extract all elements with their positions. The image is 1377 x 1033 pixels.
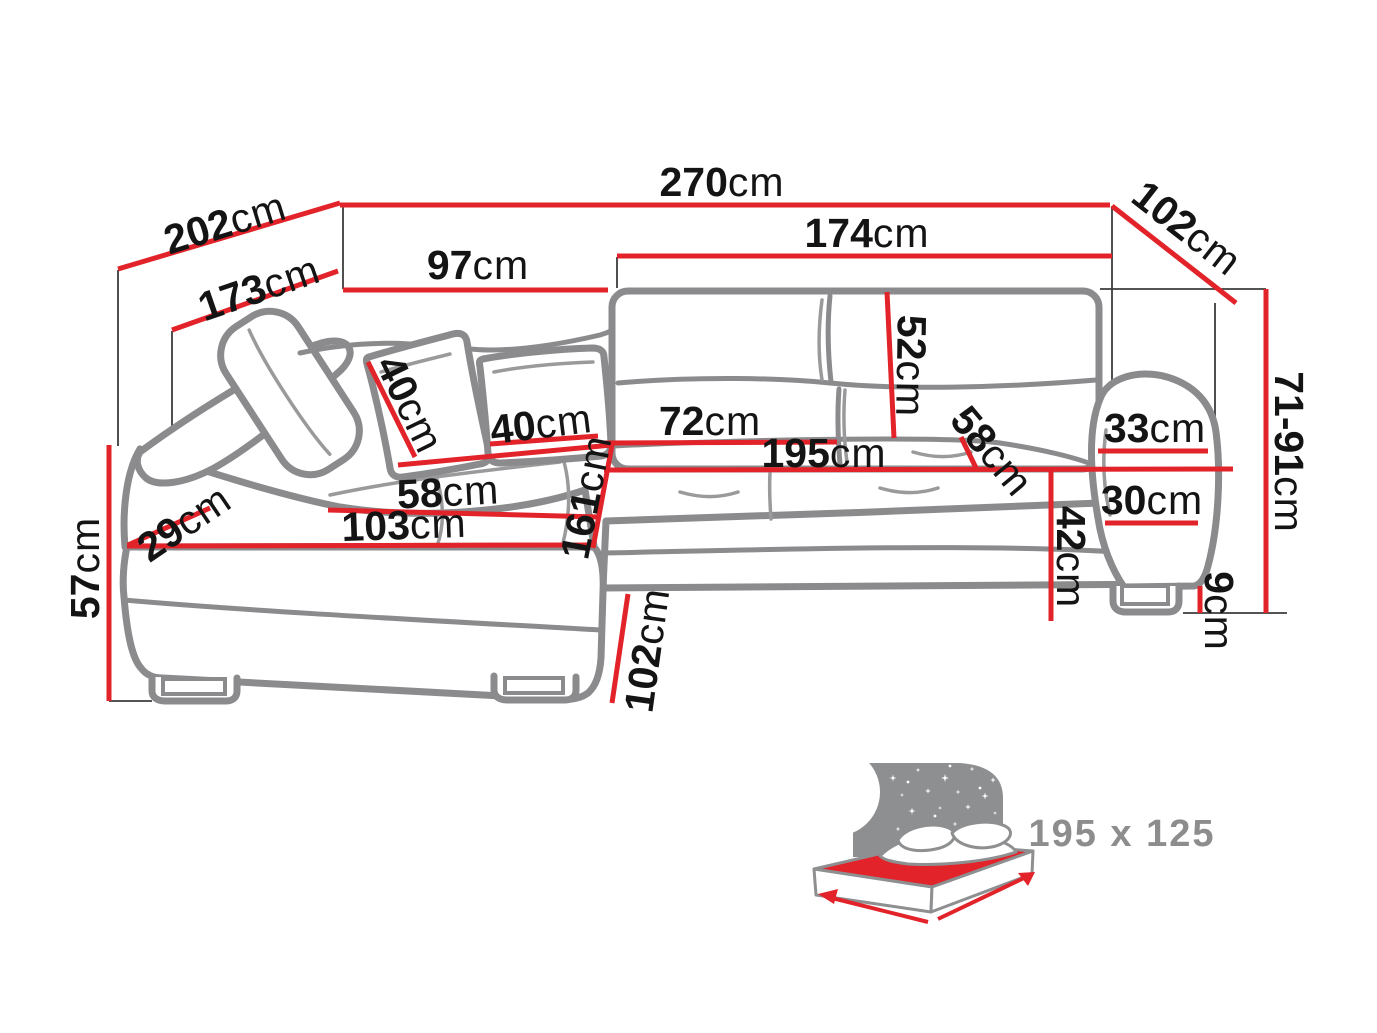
seat-tuft-2	[880, 488, 938, 493]
dim-label-71-91: 71-91cm	[1266, 371, 1312, 533]
diagram-canvas: 202cm 173cm 270cm 97cm 174cm 102cm 52cm …	[0, 0, 1377, 1033]
dim-label-42: 42cm	[1048, 506, 1094, 608]
dim-label-174: 174cm	[804, 210, 929, 256]
dim-label-9: 9cm	[1196, 571, 1242, 650]
pillow-icon-2	[952, 822, 1011, 848]
dim-label-270: 270cm	[659, 159, 784, 205]
backrest-seam-vertical	[828, 296, 831, 382]
dim-label-30: 30cm	[1101, 477, 1203, 523]
dim-label-72: 72cm	[659, 398, 761, 444]
dim-label-195: 195cm	[761, 430, 886, 476]
dim-label-103: 103cm	[341, 500, 468, 550]
bed-size-label: 195 x 125	[1028, 813, 1215, 855]
dim-label-202: 202cm	[158, 183, 291, 264]
dim-label-57: 57cm	[62, 517, 108, 619]
dim-label-97: 97cm	[427, 242, 529, 288]
seat-tuft-1	[680, 492, 738, 497]
seat-seam-vert	[770, 473, 771, 519]
dim-label-52: 52cm	[887, 314, 935, 417]
moon-crescent-icon	[792, 748, 880, 836]
dim-label-33: 33cm	[1104, 405, 1206, 451]
sofa-dimension-diagram: 202cm 173cm 270cm 97cm 174cm 102cm 52cm …	[0, 0, 1377, 1033]
dim-line-195	[604, 469, 1233, 470]
